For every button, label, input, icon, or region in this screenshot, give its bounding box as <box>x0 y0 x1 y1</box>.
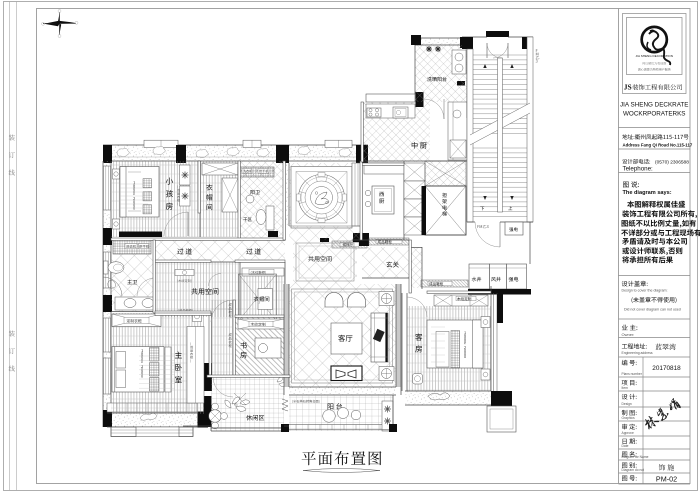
svg-text:Approve: Approve <box>622 431 634 435</box>
svg-text:Date: Date <box>622 444 629 448</box>
svg-text:JIA SHENG DECORATION: JIA SHENG DECORATION <box>636 54 673 58</box>
svg-text:Design to cover the diagram:: Design to cover the diagram: <box>622 289 668 293</box>
svg-text:Diagram do not: Diagram do not <box>622 468 645 472</box>
svg-text:Did not cover diagram can not: Did not cover diagram can not used <box>624 308 681 312</box>
svg-text:The diagram says:: The diagram says: <box>623 190 672 196</box>
svg-text:Plans number: Plans number <box>622 372 643 376</box>
svg-text:Item: Item <box>622 386 629 390</box>
svg-text:Telephone:: Telephone: <box>623 166 654 173</box>
svg-text:Graphics: Graphics <box>622 416 636 420</box>
svg-text:Address Fang Qi Road No.115-11: Address Fang Qi Road No.115-117 <box>623 143 693 148</box>
svg-text:20170818: 20170818 <box>652 365 681 372</box>
svg-text:PM-02: PM-02 <box>656 475 677 484</box>
svg-text:Diagram for Name: Diagram for Name <box>622 455 649 459</box>
svg-text:JIA SHENG DECKRATE: JIA SHENG DECKRATE <box>620 102 688 109</box>
svg-text:Engineering address: Engineering address <box>622 351 653 355</box>
svg-text:(0570) 2306588: (0570) 2306588 <box>655 160 689 166</box>
svg-text:JS: JS <box>624 83 632 92</box>
svg-text:Design: Design <box>622 402 632 406</box>
svg-text:WOCKRPORATERKS: WOCKRPORATERKS <box>623 111 686 118</box>
svg-text:Owner:: Owner: <box>622 332 635 337</box>
